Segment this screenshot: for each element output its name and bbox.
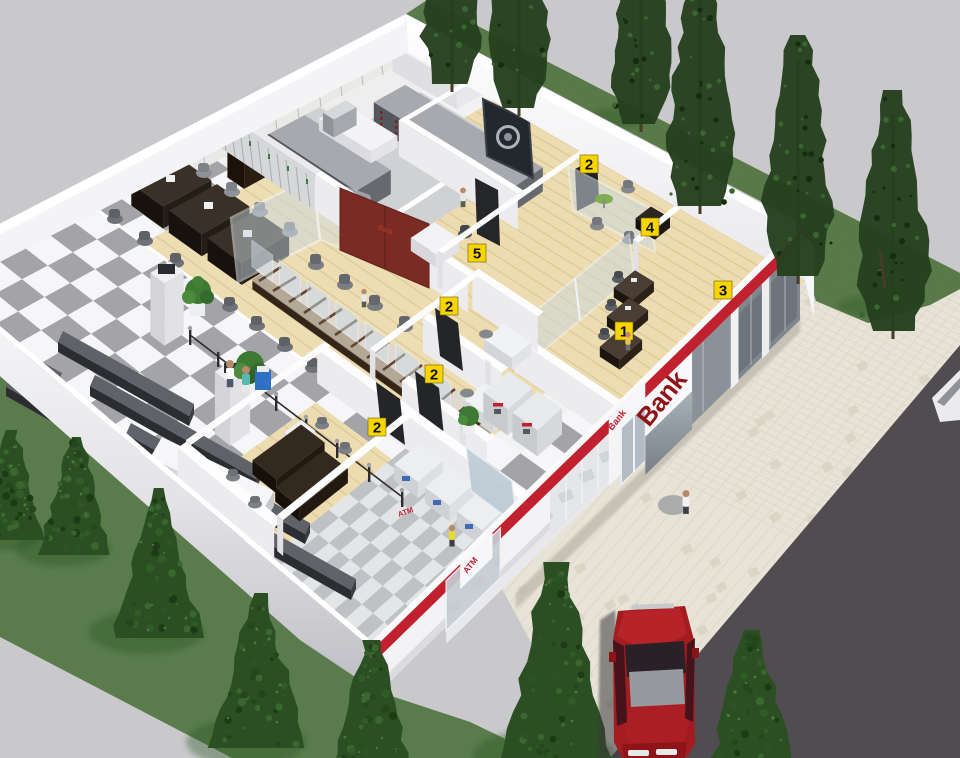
svg-text:4: 4 (646, 220, 655, 237)
svg-text:2: 2 (585, 157, 593, 174)
svg-text:2: 2 (445, 299, 453, 316)
svg-text:2: 2 (373, 420, 381, 437)
svg-text:5: 5 (473, 246, 481, 263)
svg-text:2: 2 (430, 367, 438, 384)
svg-text:3: 3 (719, 283, 727, 300)
